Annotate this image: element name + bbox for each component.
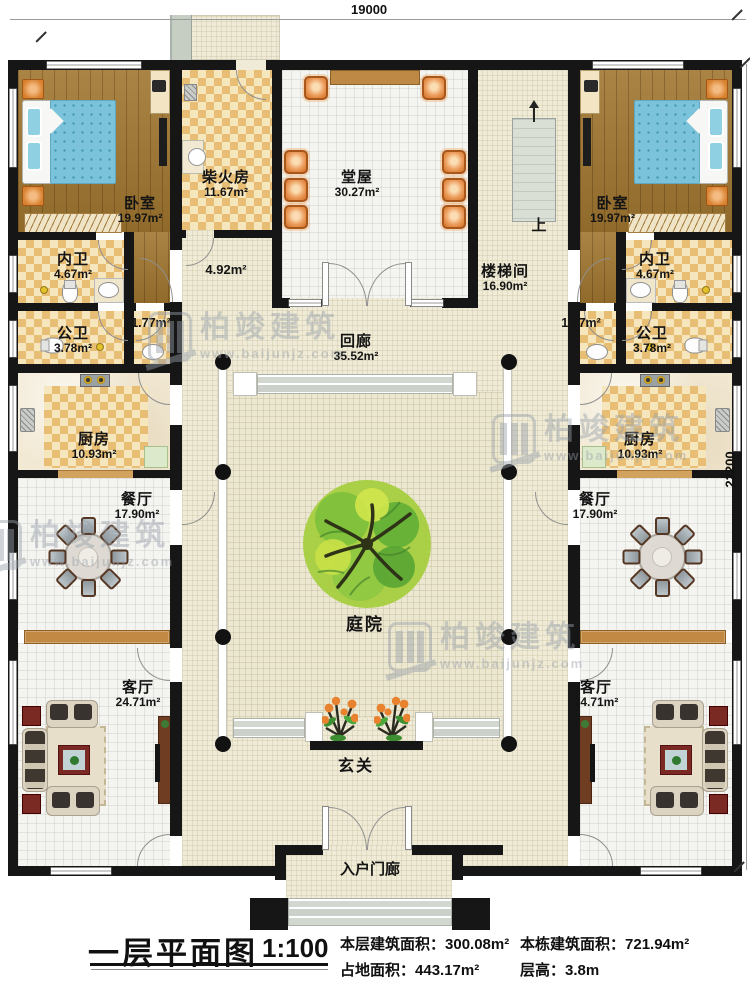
column-dot [501,464,517,480]
porch-pillar [250,898,288,930]
hall-chair [284,205,308,229]
wall [126,303,136,311]
stairs-arrow-icon [533,106,535,122]
wall [568,425,580,490]
desk-right [580,70,600,114]
wall [164,303,170,311]
wall [8,303,98,311]
bed-left-quilt [50,100,116,184]
wall [580,470,617,478]
sideboard [580,630,726,644]
title-underline [90,963,328,966]
desk-left [150,70,170,114]
wall [578,303,586,311]
desk-gadget-icon [152,80,166,92]
toilet-icon [62,280,78,303]
dining-chair [54,523,77,546]
sink-icon [98,282,119,298]
pillow [708,141,724,171]
desk-gadget-icon [584,80,598,92]
kitchen-counter-pass [58,470,133,478]
stairs-arrow-head-icon [529,100,539,108]
door-leaf [405,806,412,850]
window [733,88,741,168]
column-dot [215,736,231,752]
door-gap [236,60,266,70]
wall [8,60,18,876]
room-label-living-left: 客厅 24.71m² [88,680,188,709]
tv-icon [159,118,167,166]
window [640,867,702,875]
hall-chair [284,150,308,174]
sofa-cushion [680,792,698,808]
plan-scale: 1:100 [262,933,329,964]
nightstand [706,79,728,99]
window [50,867,112,875]
wall [170,425,182,490]
wall [614,303,622,311]
title-underline-thin [91,969,328,970]
sink-icon [142,344,164,360]
hall-chair [442,150,466,174]
dining-chair [672,567,695,590]
room-label-inner-bath-right: 内卫 4.67m² [612,252,698,281]
porch-steps [288,898,452,926]
wall [133,470,170,478]
washboard-icon [184,84,197,101]
hall-chair [304,76,328,100]
dining-chair [684,550,702,565]
hall-chair [284,178,308,202]
bed-right-quilt [634,100,700,184]
sideboard [24,630,170,644]
room-label-dining-right: 餐厅 17.90m² [546,492,644,521]
decor-plant-icon [161,720,169,728]
wall [8,232,96,240]
stat-storey-height: 层高：3.8m [520,959,599,980]
window [9,385,17,452]
window [733,552,741,600]
courtyard-steps-bottom-right [433,718,500,738]
dimension-height-line [746,64,747,870]
wall [652,303,732,311]
stairs [512,118,556,222]
window [592,61,684,69]
room-label-bedroom-left: 卧室 19.97m² [90,196,190,225]
door-leaf [322,262,329,306]
dining-chair [48,550,66,565]
room-label-public-bath-left: 公卫 3.78m² [30,326,116,355]
hall-chair [442,178,466,202]
burner-icon [97,376,105,384]
dining-chair [110,550,128,565]
porch-label: 入户门廊 [318,858,422,879]
foyer-label: 玄关 [320,752,392,776]
wall [578,364,742,373]
dining-chair [98,523,121,546]
wall [170,545,182,648]
kitchen-counter-pass [617,470,692,478]
tv-icon [583,118,591,166]
dimension-width-label: 19000 [351,2,387,17]
burner-icon [84,376,92,384]
sofa-cushions [705,731,725,789]
courtyard-colonnade-strip [503,362,512,746]
courtyard-label: 庭院 [320,610,410,635]
potted-plant-icon [374,696,410,742]
pillow [26,107,42,137]
column-dot [215,629,231,645]
dining-chair [81,579,96,597]
dining-chair [672,523,695,546]
hall-chair [442,205,466,229]
wall [182,230,186,238]
window [9,552,17,600]
door-arc [367,807,405,850]
column-dot [501,354,517,370]
nightstand [22,79,44,99]
wall [8,866,278,876]
dining-chairs-left [48,517,128,597]
window [46,61,142,69]
stat-floor-area: 本层建筑面积：300.08m² [340,933,509,954]
door-post-pad [415,712,433,742]
room-label-kitchen-left: 厨房 10.93m² [46,432,142,461]
window [733,660,741,745]
room-label-firewood: 柴火房 11.67m² [176,170,276,199]
dimension-width-line [10,19,746,20]
column-dot [215,464,231,480]
floor-drain-icon [702,286,710,294]
window [288,299,322,307]
passage-area-label: 4.92m² [186,262,266,277]
entry-double-door [322,806,412,851]
door-leaf [322,806,329,850]
window [733,320,741,358]
window [9,660,17,745]
side-table [709,794,728,814]
small-pass-left-label: 1.77m² [116,316,186,330]
room-label-dining-left: 餐厅 17.90m² [88,492,186,521]
burner-icon [644,376,652,384]
room-label-bedroom-right: 卧室 19.97m² [560,196,665,225]
sink-icon [630,282,651,298]
window [9,255,17,293]
table-plant-icon [70,756,79,765]
column-pad [453,372,477,396]
courtyard-colonnade-strip [218,362,227,746]
door-post-pad [305,712,323,742]
room-label-corridor: 回廊 35.52m² [306,334,406,363]
wall [452,855,463,880]
sofa-cushion [50,704,68,720]
dining-chair [655,579,670,597]
room-label-main-hall: 堂屋 30.27m² [307,170,407,199]
cutting-board [144,446,168,468]
nightstand [22,186,44,206]
room-label-living-right: 客厅 24.71m² [546,680,646,709]
door-arc [367,263,405,306]
column-dot [215,354,231,370]
basin-icon [188,148,206,166]
tv-icon [155,744,160,782]
dimension-tick-icon [35,31,46,42]
door-arc [329,263,367,306]
column-dot [501,629,517,645]
window [9,88,17,168]
door-arc [329,807,367,850]
side-table [22,706,41,726]
nightstand [706,186,728,206]
dining-chair [98,567,121,590]
sink-board-icon [715,408,730,432]
side-table [709,706,728,726]
dining-chair [655,517,670,535]
side-table [22,794,41,814]
sofa-cushion [52,792,70,808]
pillow [26,141,42,171]
window [410,299,444,307]
burner-icon [657,376,665,384]
sofa-cushion [680,704,698,720]
column-pad [233,372,257,396]
floor-drain-icon [40,286,48,294]
sink-board-icon [20,408,35,432]
decor-plant-icon [581,720,589,728]
sink-icon [586,344,608,360]
wall [214,230,272,238]
plan-title: 一层平面图 [88,928,258,973]
dining-chair [54,567,77,590]
porch-pillar [452,898,490,930]
foyer-threshold [310,741,423,750]
wall [275,855,286,880]
potted-plant-icon [322,696,358,742]
small-pass-right-label: 1.77m² [546,316,616,330]
stat-land-area: 占地面积：443.17m² [340,959,479,980]
dining-chair [628,567,651,590]
dining-chairs-right [622,517,702,597]
wall [412,845,503,855]
room-label-stairwell: 楼梯间 16.90m² [455,264,555,293]
sofa-cushion [656,704,674,720]
sofa-cushion [76,792,94,808]
dining-chair [622,550,640,565]
hall-chair [422,76,446,100]
wall [18,470,58,478]
door-leaf [405,262,412,306]
wall [275,845,323,855]
room-label-kitchen-right: 厨房 10.93m² [592,432,688,461]
courtyard-steps-bottom-left [233,718,305,738]
sofa-cushions [25,731,45,789]
pillow [708,107,724,137]
wall [442,298,478,308]
column-dot [501,736,517,752]
courtyard-steps-top [257,374,453,394]
room-label-inner-bath-left: 内卫 4.67m² [30,252,116,281]
toilet-icon [672,280,688,303]
table-plant-icon [672,756,681,765]
wall [654,232,732,240]
altar-table [330,70,420,85]
window [733,255,741,293]
dimension-height-label: 22200 [723,440,738,500]
stat-total-area: 本栋建筑面积：721.94m² [520,933,689,954]
wall [8,364,172,373]
hall-double-door [322,262,412,307]
courtyard-tree-icon [300,477,434,611]
dining-chair [628,523,651,546]
floor-plan-canvas: 19000 22200 [0,0,750,988]
wall [568,545,580,648]
stairs-up-label: 上 [524,214,554,235]
chimney-flue-icon [170,15,192,60]
sofa-cushion [656,792,674,808]
tv-icon [590,744,595,782]
window [9,320,17,358]
room-label-public-bath-right: 公卫 3.78m² [608,326,696,355]
